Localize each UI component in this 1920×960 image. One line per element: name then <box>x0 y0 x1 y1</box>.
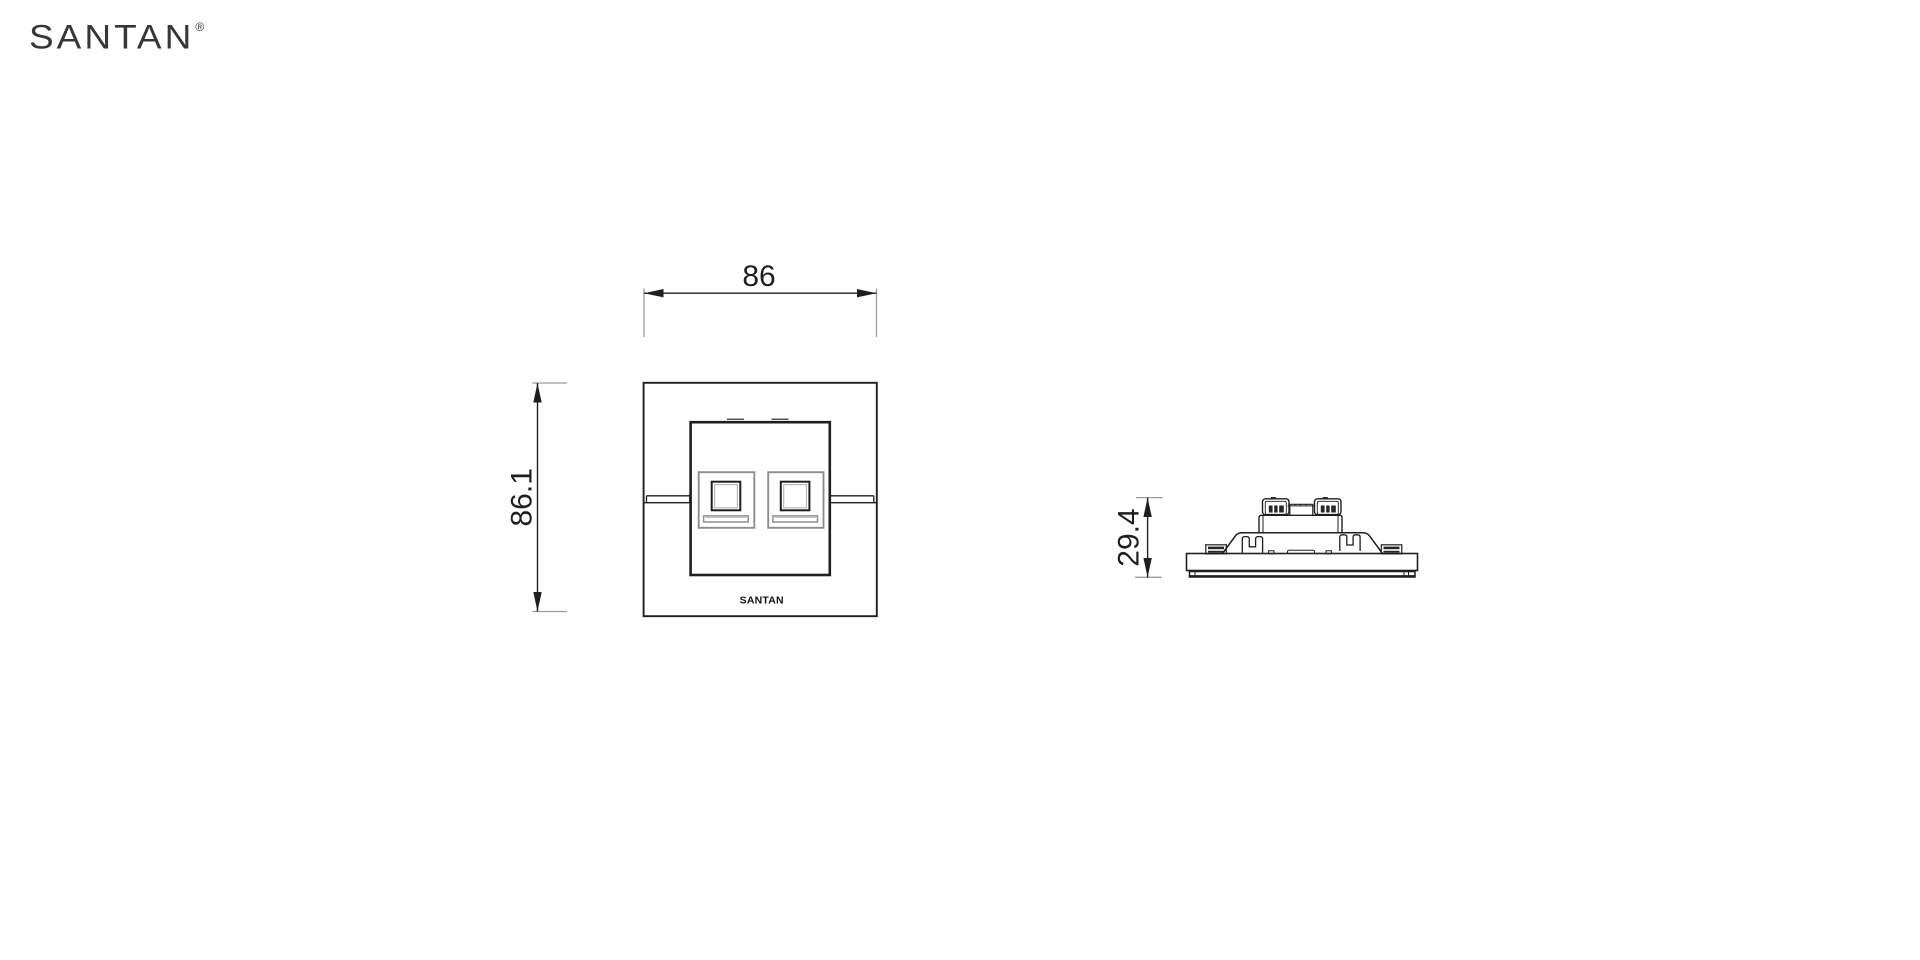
dim-height-label: 86.1 <box>506 468 539 526</box>
faceplate-outline <box>644 383 877 616</box>
front-view: SANTAN <box>644 383 877 616</box>
dim-depth-label: 29.4 <box>1113 508 1146 566</box>
label-slot <box>773 516 818 522</box>
side-clamp-right <box>1381 545 1402 554</box>
connector-latch <box>1271 497 1276 499</box>
foot <box>1269 551 1275 554</box>
plate-brand-logo: SANTAN <box>740 595 784 607</box>
dimension-height: 86.1 <box>506 383 568 612</box>
arrowhead-bottom <box>533 592 541 612</box>
clamp-band <box>1384 551 1400 553</box>
snap-clip-right <box>1340 535 1360 551</box>
contact-slit <box>1325 506 1327 513</box>
housing-outline <box>1259 515 1342 533</box>
connector-contacts <box>1269 506 1284 513</box>
clamp-band <box>1384 547 1400 550</box>
arrowhead-top <box>533 383 541 403</box>
dim-width-label: 86 <box>742 260 775 293</box>
rear-housing <box>1259 515 1342 533</box>
dimension-depth: 29.4 <box>1113 498 1163 578</box>
arrowhead-right <box>857 289 877 297</box>
rear-connector-right <box>1315 497 1342 515</box>
connector-contacts <box>1321 506 1336 513</box>
label-slot <box>704 516 749 522</box>
contact-slit <box>1278 506 1280 513</box>
clamp-band <box>1208 551 1224 553</box>
side-view <box>1187 497 1418 577</box>
foot <box>1326 551 1332 554</box>
technical-drawing-canvas: 86 86.1 <box>0 0 1920 960</box>
drawing-page: SANTAN ® 86 86.1 <box>0 0 1920 960</box>
faceplate-profile <box>1187 554 1418 571</box>
dimension-width: 86 <box>644 260 877 337</box>
clamp-band <box>1208 547 1224 550</box>
faceplate-seam-right <box>831 496 877 503</box>
rj45-module-right <box>768 472 823 528</box>
snap-clip-left <box>1242 537 1262 553</box>
contact-slit <box>1330 506 1332 513</box>
contact-slit <box>1273 506 1275 513</box>
rj45-module-left <box>699 472 755 528</box>
center-tray <box>1288 504 1316 515</box>
faceplate-seam-left <box>644 496 690 503</box>
faceplate-lip <box>1190 572 1416 578</box>
rear-connector-left <box>1263 497 1290 515</box>
side-clamp-left <box>1206 545 1227 554</box>
connector-latch <box>1323 497 1328 499</box>
arrowhead-left <box>644 289 664 297</box>
